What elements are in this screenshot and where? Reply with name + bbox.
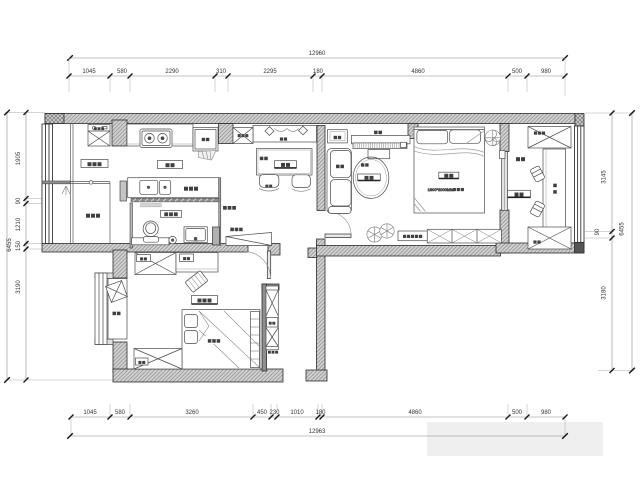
- svg-text:1045: 1045: [82, 69, 96, 75]
- svg-text:3180: 3180: [602, 286, 608, 300]
- svg-text:4860: 4860: [411, 69, 425, 75]
- svg-text:2295: 2295: [263, 69, 277, 75]
- svg-text:1210: 1210: [16, 217, 22, 231]
- svg-text:6455: 6455: [7, 238, 13, 252]
- svg-text:150: 150: [16, 240, 22, 251]
- svg-text:12963: 12963: [309, 429, 326, 435]
- svg-text:310: 310: [216, 69, 227, 75]
- svg-text:1800*2000MM: 1800*2000MM: [428, 187, 454, 192]
- svg-text:2290: 2290: [165, 69, 179, 75]
- svg-text:980: 980: [541, 69, 552, 75]
- svg-text:1045: 1045: [83, 410, 97, 416]
- svg-text:500: 500: [512, 410, 523, 416]
- svg-text:500: 500: [512, 69, 523, 75]
- svg-text:1905: 1905: [16, 151, 22, 165]
- svg-text:3145: 3145: [602, 170, 608, 184]
- svg-text:12960: 12960: [309, 51, 326, 57]
- svg-text:180: 180: [313, 69, 324, 75]
- svg-text:230: 230: [269, 410, 280, 416]
- svg-text:1010: 1010: [290, 410, 304, 416]
- svg-text:90: 90: [16, 197, 22, 204]
- svg-text:3260: 3260: [185, 410, 199, 416]
- svg-text:980: 980: [541, 410, 552, 416]
- svg-text:6455: 6455: [620, 222, 626, 236]
- svg-text:4860: 4860: [408, 410, 422, 416]
- svg-text:90: 90: [595, 228, 601, 235]
- svg-text:580: 580: [115, 410, 126, 416]
- svg-text:3190: 3190: [16, 280, 22, 294]
- svg-text:580: 580: [117, 69, 128, 75]
- svg-text:450: 450: [257, 410, 268, 416]
- svg-text:180: 180: [315, 410, 326, 416]
